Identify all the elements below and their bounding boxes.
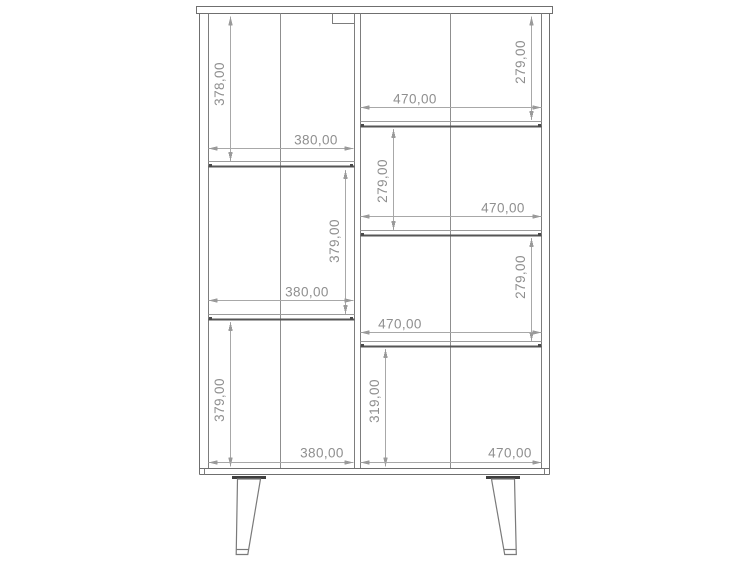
- top-board: [197, 7, 553, 14]
- dimension-left-bottom-height: [228, 322, 233, 467]
- center-divider-panel: [355, 14, 361, 469]
- top-connector-notch: [333, 14, 355, 24]
- dim-label-470-1: 470,00: [393, 92, 437, 107]
- dim-label-380-top: 380,00: [294, 133, 338, 148]
- dim-label-470-3: 470,00: [378, 317, 422, 332]
- leg-right: [492, 479, 517, 555]
- right-side-panel: [542, 14, 550, 475]
- cabinet-drawing: 378,00 380,00 379,00 380,00 379,00 380,0…: [0, 0, 750, 563]
- dim-label-380-middle: 380,00: [285, 285, 329, 300]
- leg-left: [236, 479, 260, 555]
- dim-label-378-top: 378,00: [212, 62, 227, 106]
- shelf-left-2: [209, 315, 355, 321]
- dim-label-470-bottom: 470,00: [488, 446, 532, 461]
- bottom-panel: [200, 469, 550, 475]
- dim-label-380-bottom: 380,00: [300, 446, 344, 461]
- dim-label-279-3: 279,00: [513, 255, 528, 299]
- dim-label-319-bottom: 319,00: [367, 379, 382, 423]
- dimension-left-middle-height: [343, 170, 348, 314]
- dimension-right-3-height: [529, 238, 534, 341]
- dim-label-379-middle: 379,00: [327, 219, 342, 263]
- technical-drawing-canvas: 378,00 380,00 379,00 380,00 379,00 380,0…: [0, 0, 750, 563]
- left-side-panel: [200, 14, 209, 475]
- dim-label-279-1: 279,00: [513, 40, 528, 84]
- dimension-right-2-height: [391, 129, 396, 230]
- shelf-left-1: [209, 162, 355, 168]
- dim-label-279-2: 279,00: [375, 159, 390, 203]
- dimension-right-1-height: [529, 17, 534, 121]
- dimension-right-bottom-height: [383, 349, 388, 467]
- dim-label-379-bottom: 379,00: [212, 378, 227, 422]
- dimension-left-top-height: [228, 17, 233, 162]
- dim-label-470-2: 470,00: [481, 201, 525, 216]
